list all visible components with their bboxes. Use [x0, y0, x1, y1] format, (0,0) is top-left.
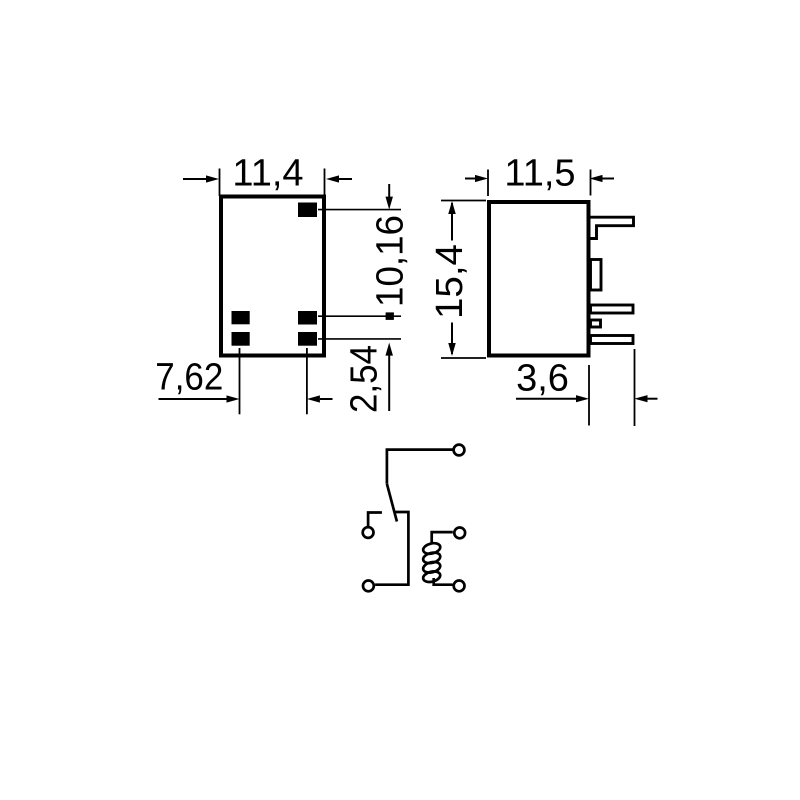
svg-text:11,5: 11,5: [504, 153, 575, 195]
svg-text:11,4: 11,4: [232, 153, 303, 195]
svg-text:2,54: 2,54: [344, 345, 386, 413]
svg-text:7,62: 7,62: [155, 357, 223, 399]
svg-text:10,16: 10,16: [370, 215, 412, 307]
svg-text:3,6: 3,6: [516, 358, 569, 400]
svg-text:15,4: 15,4: [429, 244, 471, 319]
